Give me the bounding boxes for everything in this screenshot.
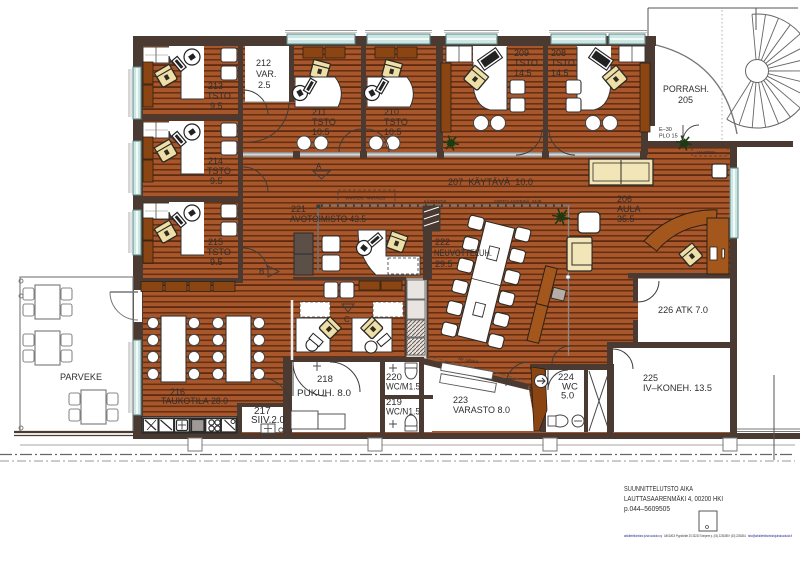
svg-text:9.5: 9.5 [210,101,223,111]
svg-text:10.5: 10.5 [312,127,330,137]
svg-text:LAUTTASAARENMÄKI 4, 00200 HKI: LAUTTASAARENMÄKI 4, 00200 HKI [624,494,723,503]
svg-text:B: B [259,267,264,276]
svg-text:213: 213 [208,81,223,91]
svg-text:TSTO: TSTO [551,58,575,68]
svg-text:E–30: E–30 [659,127,672,133]
svg-text:9.5: 9.5 [210,176,223,186]
svg-text:PLO 15: PLO 15 [659,134,678,140]
svg-text:AVOTOIMISTO 43.5: AVOTOIMISTO 43.5 [290,214,366,224]
svg-text:208: 208 [551,48,566,58]
svg-text:VAATEN.: VAATEN. [697,150,716,155]
svg-text:TSTO: TSTO [207,247,231,257]
svg-text:215: 215 [208,237,223,247]
svg-text:VAR.: VAR. [256,69,276,79]
svg-text:29.5: 29.5 [435,259,453,269]
svg-text:206: 206 [617,194,632,204]
svg-text:p.044–5609505: p.044–5609505 [624,504,670,513]
svg-text:214: 214 [208,156,223,166]
svg-text:221: 221 [291,204,306,214]
svg-text:arkkitehtitoimisto juha kuokol: arkkitehtitoimisto juha kuokola oy [624,534,662,538]
svg-text:222: 222 [435,237,450,247]
svg-text:5.0: 5.0 [561,391,574,402]
svg-text:KÄYNTIOVI: KÄYNTIOVI [424,199,446,204]
svg-text:TSTO: TSTO [207,91,231,101]
svg-text:SUUNNITTELUTSTO AIKA: SUUNNITTELUTSTO AIKA [624,484,693,493]
svg-text:226 ATK 7.0: 226 ATK 7.0 [658,305,708,315]
svg-text:WC/N1.5: WC/N1.5 [386,407,420,418]
svg-text:10.5: 10.5 [384,127,402,137]
svg-text:14.5: 14.5 [514,68,532,78]
svg-text:IV–KONEH. 13.5: IV–KONEH. 13.5 [643,383,712,393]
svg-text:14.5: 14.5 [551,68,569,78]
svg-text:PORRASH.: PORRASH. [663,84,709,94]
svg-text:35.5: 35.5 [617,214,635,224]
svg-text:VAATEN. VARAUS: VAATEN. VARAUS [345,196,385,201]
svg-text:VARASTO 8.0: VARASTO 8.0 [453,405,510,415]
svg-text:TSTO: TSTO [514,58,538,68]
svg-text:207 KÄYTÄVÄ 10.0: 207 KÄYTÄVÄ 10.0 [448,177,533,187]
svg-text:209: 209 [514,48,529,58]
svg-text:218: 218 [317,374,333,385]
svg-text:PUKUH. 8.0: PUKUH. 8.0 [297,388,351,399]
svg-text:TSTO: TSTO [384,117,408,127]
svg-text:C: C [344,315,350,324]
svg-text:225: 225 [643,373,658,383]
svg-text:NEUVOTTELUH.: NEUVOTTELUH. [434,248,492,258]
svg-text:TAUKOTILA 28.0: TAUKOTILA 28.0 [161,396,228,406]
svg-text:tsto@arkkitehtitoimistojuhakuo: tsto@arkkitehtitoimistojuhakuokola.fi [748,534,792,538]
svg-text:210: 210 [384,107,399,117]
svg-text:223: 223 [453,395,468,405]
svg-text:TSTO: TSTO [312,117,336,127]
svg-text:TSTO: TSTO [207,166,231,176]
svg-text:212: 212 [256,58,271,68]
svg-text:211: 211 [312,107,326,117]
svg-text:PARVEKE: PARVEKE [60,372,102,383]
svg-text:AIK/DATA Pyynikintie 25 33230: AIK/DATA Pyynikintie 25 33230 Tampere p.… [664,534,746,538]
svg-text:WC/M1.5: WC/M1.5 [386,382,420,393]
svg-text:AULA: AULA [617,204,641,214]
svg-text:205: 205 [678,95,693,105]
svg-text:2.5: 2.5 [258,80,271,90]
svg-text:9.5: 9.5 [210,257,223,267]
svg-text:SIIRTOLASISEINÄ 34dB: SIIRTOLASISEINÄ 34dB [494,199,542,204]
svg-text:A: A [316,162,322,171]
